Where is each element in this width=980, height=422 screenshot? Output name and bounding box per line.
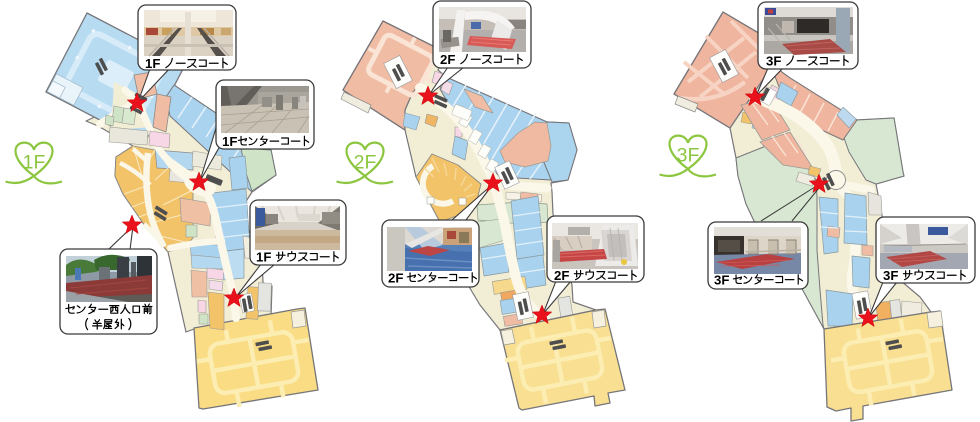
svg-text:1F: 1F xyxy=(23,152,46,174)
svg-text:2F: 2F xyxy=(554,268,569,283)
svg-text:3F: 3F xyxy=(766,53,781,68)
svg-text:3F: 3F xyxy=(883,268,898,283)
svg-text:1F: 1F xyxy=(145,56,160,71)
svg-text:2F: 2F xyxy=(354,152,377,174)
svg-text:2F: 2F xyxy=(388,270,403,285)
svg-text:2F: 2F xyxy=(440,52,455,67)
svg-text:3F: 3F xyxy=(677,145,700,167)
svg-text:3F: 3F xyxy=(714,272,729,287)
svg-text:1F: 1F xyxy=(256,249,271,264)
svg-text:1F: 1F xyxy=(222,134,237,149)
